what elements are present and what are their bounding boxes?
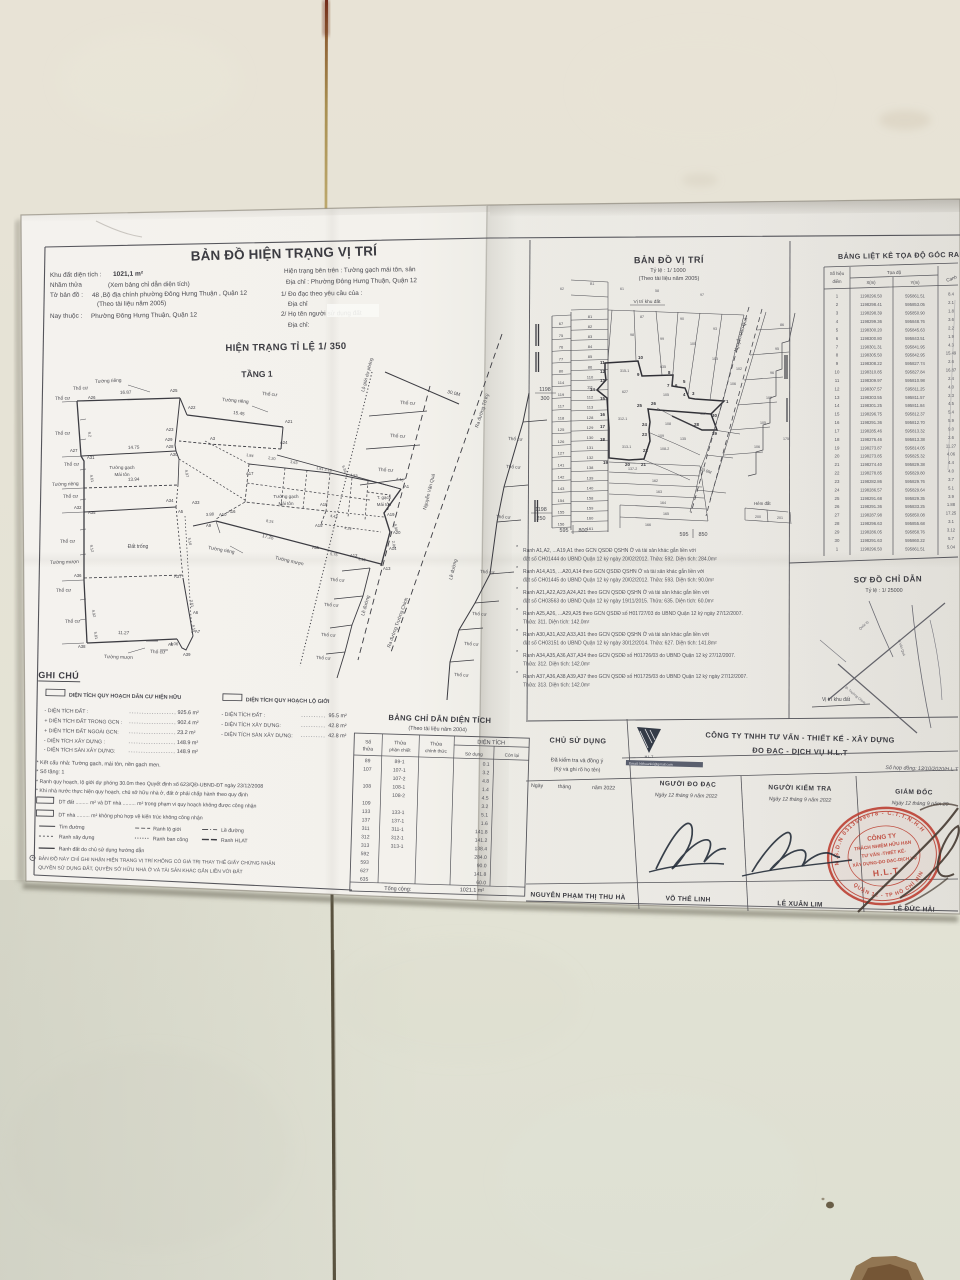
svg-text:595: 595: [680, 532, 689, 538]
svg-text:102: 102: [766, 396, 772, 400]
svg-text:A35: A35: [88, 510, 96, 515]
svg-text:127: 127: [558, 451, 565, 456]
svg-text:108-1: 108-1: [392, 784, 405, 790]
svg-text:126: 126: [558, 439, 565, 444]
svg-text:595810.98: 595810.98: [905, 378, 925, 383]
svg-text:87: 87: [640, 315, 644, 319]
svg-text:* Số tầng: 1: * Số tầng: 1: [36, 769, 64, 776]
svg-text:Thổ cư: Thổ cư: [321, 631, 336, 638]
svg-text:925.6 m²: 925.6 m²: [177, 710, 199, 716]
svg-text:129: 129: [587, 425, 594, 430]
svg-text:312-1: 312-1: [391, 835, 404, 841]
svg-text:595813.38: 595813.38: [905, 437, 925, 442]
svg-text:Y(m): Y(m): [910, 280, 920, 285]
svg-text:311-1: 311-1: [391, 827, 404, 833]
svg-text:200: 200: [755, 515, 761, 519]
svg-text:26: 26: [651, 401, 656, 406]
svg-text:160: 160: [587, 516, 594, 521]
svg-text:5.04: 5.04: [947, 544, 956, 549]
svg-text:102: 102: [736, 367, 742, 371]
svg-text:30: 30: [712, 413, 717, 418]
svg-text:Ranh A30,A31,A32,A33,A31 theo: Ranh A30,A31,A32,A33,A31 theo GCN QSDĐ Q…: [523, 631, 709, 638]
svg-text:130: 130: [587, 435, 594, 440]
svg-text:Tường mượn: Tường mượn: [104, 654, 133, 661]
svg-text:Thổ cư: Thổ cư: [472, 610, 487, 617]
svg-text:119: 119: [558, 392, 565, 397]
svg-text:Sử dụng: Sử dụng: [465, 750, 483, 757]
svg-text:60.0: 60.0: [476, 880, 486, 886]
svg-text:Tường gạch: Tường gạch: [109, 465, 135, 470]
svg-text:1198308.22: 1198308.22: [860, 361, 882, 366]
svg-text:3.7: 3.7: [948, 477, 954, 482]
svg-text:96: 96: [770, 371, 774, 375]
svg-text:Tỷ lệ : 1/ 1000: Tỷ lệ : 1/ 1000: [650, 267, 685, 274]
svg-text:A27: A27: [70, 448, 78, 453]
svg-text:18: 18: [600, 437, 605, 442]
svg-text:H.L.T: H.L.T: [645, 755, 655, 759]
svg-text:4.3: 4.3: [948, 342, 954, 347]
svg-text:24: 24: [835, 487, 840, 492]
svg-text:80: 80: [559, 368, 564, 373]
svg-text:139: 139: [587, 475, 594, 480]
svg-text:3.12: 3.12: [947, 527, 956, 532]
svg-text:593: 593: [360, 860, 369, 866]
svg-text:1198296.75: 1198296.75: [860, 412, 882, 417]
svg-text:3.9: 3.9: [948, 494, 954, 499]
svg-text:315-1: 315-1: [620, 369, 629, 373]
svg-text:19: 19: [835, 445, 840, 450]
svg-text:phần chiết: phần chiết: [389, 747, 411, 753]
svg-text:đất số CH01445 do UBND Quận 12: đất số CH01445 do UBND Quận 12 ký ngày 2…: [523, 577, 714, 584]
svg-text:1198305.50: 1198305.50: [860, 353, 882, 358]
svg-text:4.8: 4.8: [482, 779, 489, 785]
svg-text:107: 107: [363, 767, 372, 773]
svg-text:128: 128: [587, 415, 594, 420]
svg-text:3.88: 3.88: [206, 511, 215, 517]
svg-text:592: 592: [361, 851, 370, 857]
svg-text:1198291.36: 1198291.36: [860, 504, 882, 509]
svg-text:62: 62: [560, 287, 564, 291]
svg-text:A33: A33: [192, 500, 200, 505]
svg-text:23: 23: [835, 479, 840, 484]
svg-text:Thửa: Thửa: [430, 740, 442, 747]
svg-text:17.25: 17.25: [946, 511, 957, 516]
svg-text:99: 99: [660, 337, 664, 341]
svg-text:14.75: 14.75: [128, 445, 140, 450]
svg-text:1021.1 m²: 1021.1 m²: [460, 887, 485, 894]
svg-text:1198: 1198: [539, 387, 551, 393]
svg-text:16.87: 16.87: [946, 368, 957, 373]
svg-text:23: 23: [642, 432, 647, 437]
svg-text:595: 595: [560, 528, 569, 534]
svg-text:138.4: 138.4: [474, 846, 487, 852]
svg-text:131: 131: [587, 445, 594, 450]
svg-text:GHI CHÚ: GHI CHÚ: [38, 669, 79, 681]
svg-text:(Theo tài liệu năm 2005): (Theo tài liệu năm 2005): [97, 300, 166, 308]
svg-text:4.5: 4.5: [948, 401, 954, 406]
svg-text:107-1: 107-1: [393, 767, 406, 773]
svg-text:Số: Số: [365, 739, 372, 745]
svg-text:12: 12: [600, 369, 605, 374]
svg-text:800: 800: [579, 528, 588, 534]
svg-text:A34: A34: [166, 498, 174, 503]
svg-text:17: 17: [835, 428, 840, 433]
svg-text:595841.95: 595841.95: [905, 344, 925, 349]
svg-text:đất số CH03151 do UBND Quận 12: đất số CH03151 do UBND Quận 12 ký ngày 3…: [523, 640, 717, 647]
svg-text:1.8: 1.8: [948, 309, 954, 314]
svg-text:9.0: 9.0: [948, 426, 954, 431]
svg-text:105: 105: [760, 421, 766, 425]
svg-text:A8: A8: [168, 642, 174, 647]
svg-text:107: 107: [700, 412, 706, 416]
svg-text:13: 13: [835, 395, 840, 400]
svg-text:133: 133: [362, 809, 371, 815]
svg-text:850: 850: [699, 532, 708, 538]
svg-text:A36: A36: [74, 573, 82, 578]
svg-text:112: 112: [587, 395, 594, 400]
svg-text:Phường Đông Hưng Thuận, Quận 1: Phường Đông Hưng Thuận, Quận 12: [91, 312, 198, 320]
svg-text:105: 105: [663, 393, 669, 397]
svg-text:58: 58: [655, 289, 659, 293]
svg-text:108-2: 108-2: [660, 447, 669, 451]
svg-text:595829.76: 595829.76: [905, 479, 925, 484]
svg-text:Tường mượn: Tường mượn: [50, 559, 79, 566]
svg-text:133-1: 133-1: [392, 810, 405, 816]
svg-text:A18: A18: [320, 502, 328, 507]
svg-text:4.06: 4.06: [947, 452, 956, 457]
svg-text:1198285.46: 1198285.46: [860, 428, 882, 433]
svg-text:313: 313: [361, 843, 370, 849]
svg-text:90: 90: [680, 317, 684, 321]
svg-text:16.87: 16.87: [120, 390, 132, 395]
svg-text:A24: A24: [280, 440, 288, 445]
svg-text:Đã kiểm tra và đồng ý: Đã kiểm tra và đồng ý: [551, 756, 604, 764]
svg-text:635: 635: [360, 877, 369, 883]
svg-text:15: 15: [600, 396, 605, 401]
svg-text:24: 24: [642, 422, 647, 427]
svg-text:595813.32: 595813.32: [905, 428, 925, 433]
svg-text:1198278.85: 1198278.85: [860, 471, 882, 476]
svg-text:Ranh A34,A35,A36,A37,A34 theo: Ranh A34,A35,A36,A37,A34 theo GCN QSDĐ s…: [523, 653, 735, 659]
svg-text:A6: A6: [193, 610, 199, 615]
svg-text:117: 117: [558, 404, 565, 409]
svg-text:A15: A15: [315, 523, 323, 528]
svg-text:Tỷ lệ : 1/ 25000: Tỷ lệ : 1/ 25000: [865, 587, 902, 594]
svg-text:5.4: 5.4: [948, 410, 954, 415]
svg-text:17: 17: [600, 424, 605, 429]
svg-text:140: 140: [587, 485, 594, 490]
svg-text:A39: A39: [183, 652, 191, 657]
svg-text:4.0: 4.0: [948, 469, 954, 474]
svg-text:Thổ cư: Thổ cư: [506, 463, 521, 470]
svg-text:tháng: tháng: [558, 784, 571, 790]
svg-text:Thửa: Thửa: [394, 739, 406, 746]
svg-text:A19: A19: [387, 512, 395, 517]
svg-text:159: 159: [587, 506, 594, 511]
svg-text:1198274.40: 1198274.40: [860, 462, 882, 467]
svg-text:137-2: 137-2: [628, 467, 637, 471]
svg-text:20: 20: [835, 454, 840, 459]
svg-text:284.0: 284.0: [474, 855, 487, 861]
svg-text:Còn lại: Còn lại: [505, 753, 519, 758]
svg-text:28: 28: [835, 521, 840, 526]
svg-text:165: 165: [663, 512, 669, 516]
svg-text:109: 109: [362, 800, 371, 806]
svg-text:86: 86: [780, 323, 784, 327]
svg-text:89: 89: [365, 758, 371, 764]
svg-text:113: 113: [587, 405, 594, 410]
svg-text:595858.76: 595858.76: [905, 529, 925, 534]
svg-text:Ranh A21,A22,A23,A24,A21 theo: Ranh A21,A22,A23,A24,A21 theo GCN QSDĐ Q…: [523, 589, 709, 596]
svg-text:1198307.57: 1198307.57: [860, 386, 882, 391]
svg-text:162: 162: [652, 479, 658, 483]
svg-text:595811.84: 595811.84: [905, 403, 925, 408]
svg-text:Mái tôn: Mái tôn: [114, 472, 130, 477]
svg-text:595842.95: 595842.95: [905, 353, 925, 358]
svg-text:Ranh ban công: Ranh ban công: [153, 836, 188, 843]
svg-text:A25: A25: [170, 388, 178, 393]
svg-text:156: 156: [558, 521, 565, 526]
svg-text:19: 19: [603, 460, 608, 465]
svg-text:Vị trí khu đất: Vị trí khu đất: [822, 697, 851, 703]
svg-text:105: 105: [712, 357, 718, 361]
svg-text:Lề đường: Lề đường: [221, 828, 244, 834]
svg-text:75: 75: [559, 333, 564, 338]
svg-text:1198287.98: 1198287.98: [860, 513, 882, 518]
svg-text:Ranh A1,A2, ...A19,A1 theo GCN: Ranh A1,A2, ...A19,A1 theo GCN QSDĐ QSHN…: [523, 547, 696, 554]
svg-text:1198303.55: 1198303.55: [860, 395, 882, 400]
svg-text:1.6: 1.6: [481, 821, 488, 827]
svg-text:148.9 m²: 148.9 m²: [177, 749, 199, 755]
svg-text:141.8: 141.8: [474, 871, 487, 877]
svg-text:Địa chỉ:: Địa chỉ:: [288, 321, 310, 329]
svg-text:595855.68: 595855.68: [905, 521, 925, 526]
svg-text:1198282.86: 1198282.86: [860, 479, 882, 484]
svg-text:8.4: 8.4: [948, 292, 954, 297]
svg-text:108-2: 108-2: [392, 793, 405, 799]
svg-text:chính thức: chính thức: [425, 748, 448, 754]
svg-text:18: 18: [835, 437, 840, 442]
svg-text:Ranh HLAT: Ranh HLAT: [221, 838, 249, 845]
svg-text:Địa chỉ: Địa chỉ: [288, 300, 308, 308]
svg-text:125: 125: [558, 427, 565, 432]
svg-text:1198286.57: 1198286.57: [860, 487, 882, 492]
svg-text:Thổ cư: Thổ cư: [464, 640, 479, 647]
svg-text:108: 108: [363, 783, 372, 789]
svg-text:155: 155: [558, 510, 565, 515]
svg-text:1198301.31: 1198301.31: [860, 344, 882, 349]
svg-text:đất số CH01444 do UBND Quận 12: đất số CH01444 do UBND Quận 12 ký ngày 2…: [523, 556, 717, 563]
svg-text:902.4 m²: 902.4 m²: [177, 720, 199, 726]
svg-text:25: 25: [637, 403, 642, 408]
svg-text:Thửa: 313. Diện tích: 142.0m²: Thửa: 313. Diện tích: 142.0m²: [523, 682, 590, 689]
svg-text:A16: A16: [228, 509, 236, 514]
svg-text:110: 110: [587, 374, 594, 379]
svg-text:107-2: 107-2: [393, 776, 406, 782]
svg-text:595812.37: 595812.37: [905, 412, 925, 417]
svg-text:595811.25: 595811.25: [905, 386, 925, 391]
svg-text:Ranh A37,A36,A38,A39,A37 theo: Ranh A37,A36,A38,A39,A37 theo GCN QSDĐ s…: [523, 674, 748, 680]
svg-text:595827.74: 595827.74: [905, 361, 925, 366]
svg-text:595848.76: 595848.76: [905, 319, 925, 324]
svg-text:118: 118: [558, 415, 565, 420]
svg-text:16: 16: [600, 412, 605, 417]
svg-text:Tường gạch: Tường gạch: [273, 494, 299, 499]
svg-text:A1: A1: [404, 484, 410, 489]
svg-text:14: 14: [835, 403, 840, 408]
svg-text:161: 161: [587, 526, 594, 531]
svg-text:163: 163: [656, 490, 662, 494]
svg-text:11: 11: [600, 360, 605, 365]
svg-text:595825.32: 595825.32: [905, 454, 925, 459]
svg-text:đất số CH03563 do UBND Quận 12: đất số CH03563 do UBND Quận 12 ký ngày 1…: [523, 598, 714, 605]
svg-text:năm 2022: năm 2022: [592, 785, 615, 792]
svg-text:86: 86: [588, 364, 593, 369]
svg-text:595850.08: 595850.08: [905, 513, 925, 518]
svg-text:83: 83: [588, 334, 593, 339]
svg-text:HIỆN TRẠNG TỈ LỆ 1/ 350: HIỆN TRẠNG TỈ LỆ 1/ 350: [225, 340, 346, 354]
svg-text:Mái tôn: Mái tôn: [377, 502, 392, 507]
svg-text:1198300.20: 1198300.20: [860, 327, 882, 332]
svg-text:*: *: [31, 856, 33, 862]
svg-text:1198296.50: 1198296.50: [860, 546, 882, 551]
svg-text:13: 13: [600, 378, 605, 383]
svg-text:CHỦ SỬ DỤNG: CHỦ SỬ DỤNG: [549, 736, 606, 746]
svg-text:Thổ cư: Thổ cư: [496, 513, 511, 520]
svg-text:Thổ cư: Thổ cư: [324, 601, 339, 608]
svg-text:627: 627: [360, 868, 369, 874]
svg-text:114: 114: [558, 380, 565, 385]
svg-text:B1: B1: [590, 282, 594, 286]
svg-text:X(m): X(m): [866, 280, 876, 285]
svg-text:201: 201: [777, 516, 783, 520]
svg-text:98: 98: [630, 333, 634, 337]
svg-text:148.9 m²: 148.9 m²: [177, 740, 199, 746]
svg-text:15: 15: [835, 412, 840, 417]
svg-text:Tổng cộng:: Tổng cộng:: [384, 885, 411, 893]
svg-text:90.0: 90.0: [477, 863, 487, 869]
svg-text:595833.25: 595833.25: [905, 504, 925, 509]
svg-text:1.4: 1.4: [482, 787, 489, 793]
svg-text:A10: A10: [219, 512, 227, 517]
svg-text:30: 30: [835, 538, 840, 543]
svg-text:A13: A13: [383, 566, 391, 571]
svg-text:138: 138: [587, 465, 594, 470]
svg-text:3.6: 3.6: [948, 317, 954, 322]
svg-text:1198298.39: 1198298.39: [860, 311, 882, 316]
svg-text:Vị trí khu đất: Vị trí khu đất: [634, 299, 662, 305]
svg-text:595827.84: 595827.84: [905, 370, 925, 375]
svg-text:21: 21: [641, 462, 646, 467]
svg-text:28: 28: [694, 422, 699, 427]
svg-text:141.8: 141.8: [475, 829, 488, 835]
svg-text:1198291.36: 1198291.36: [860, 420, 882, 425]
svg-text:12: 12: [835, 386, 840, 391]
svg-text:313-1: 313-1: [391, 844, 404, 850]
svg-text:81: 81: [588, 314, 593, 319]
svg-text:1198301.25: 1198301.25: [860, 403, 882, 408]
svg-text:1198286.05: 1198286.05: [860, 529, 882, 534]
svg-text:143: 143: [558, 486, 565, 491]
svg-text:1198300.80: 1198300.80: [860, 336, 882, 341]
svg-text:132: 132: [587, 455, 594, 460]
svg-text:1.88: 1.88: [947, 502, 956, 507]
svg-text:1021,1 m²: 1021,1 m²: [113, 271, 144, 278]
svg-text:1198310.85: 1198310.85: [860, 370, 882, 375]
svg-text:15.49: 15.49: [946, 351, 957, 356]
svg-text:21: 21: [835, 462, 840, 467]
svg-text:TẦNG 1: TẦNG 1: [241, 369, 273, 380]
svg-text:97: 97: [700, 293, 704, 297]
svg-text:A17: A17: [246, 471, 254, 476]
svg-text:166: 166: [645, 523, 651, 527]
svg-text:22: 22: [643, 448, 648, 453]
svg-text:2.4: 2.4: [948, 376, 954, 381]
svg-text:Ranh lộ giới: Ranh lộ giới: [153, 826, 181, 833]
svg-text:3.1: 3.1: [948, 519, 954, 524]
svg-text:11.27: 11.27: [118, 630, 130, 635]
svg-text:312-1: 312-1: [618, 417, 627, 421]
svg-text:Thổ cư: Thổ cư: [316, 654, 331, 661]
svg-text:1198291.63: 1198291.63: [860, 538, 882, 543]
svg-text:Nhầm thửa: Nhầm thửa: [50, 280, 83, 289]
svg-text:Thổ cư: Thổ cư: [508, 435, 523, 442]
svg-text:Số hiệu: Số hiệu: [830, 271, 845, 276]
svg-text:108: 108: [665, 422, 671, 426]
svg-text:311: 311: [362, 826, 370, 832]
svg-text:T. gạch: T. gạch: [377, 495, 392, 500]
svg-text:595811.57: 595811.57: [905, 395, 925, 400]
svg-text:5.7: 5.7: [948, 536, 954, 541]
svg-text:Thổ cư: Thổ cư: [454, 671, 469, 678]
svg-text:1198296.63: 1198296.63: [860, 521, 882, 526]
svg-text:595812.70: 595812.70: [905, 420, 925, 425]
svg-text:A22: A22: [188, 405, 196, 410]
svg-text:25: 25: [835, 496, 840, 501]
svg-text:141: 141: [558, 463, 565, 468]
svg-text:595860.22: 595860.22: [905, 538, 925, 543]
svg-text:A3: A3: [210, 436, 216, 441]
svg-text:Thổ cư: Thổ cư: [480, 568, 495, 575]
svg-text:1198299.36: 1198299.36: [860, 319, 882, 324]
svg-text:A23: A23: [166, 427, 174, 432]
svg-text:Tờ bản đồ :: Tờ bản đồ :: [50, 290, 83, 299]
svg-text:627: 627: [622, 390, 628, 394]
svg-text:595850.90: 595850.90: [905, 311, 925, 316]
svg-text:137-1: 137-1: [391, 818, 404, 824]
svg-text:164: 164: [660, 501, 666, 505]
svg-text:Mái tôn: Mái tôn: [278, 501, 294, 506]
svg-text:595861.51: 595861.51: [905, 546, 925, 551]
svg-text:23.2 m²: 23.2 m²: [177, 730, 196, 736]
svg-text:154: 154: [558, 498, 565, 503]
svg-text:Tọa độ: Tọa độ: [887, 270, 902, 275]
svg-text:A21: A21: [285, 419, 293, 424]
svg-text:67: 67: [559, 321, 564, 326]
svg-text:595829.35: 595829.35: [905, 496, 925, 501]
svg-text:10: 10: [638, 355, 643, 360]
svg-text:27: 27: [835, 513, 840, 518]
svg-text:Tim đường: Tim đường: [59, 824, 85, 831]
svg-text:300: 300: [541, 396, 550, 402]
svg-text:1198276.46: 1198276.46: [860, 437, 882, 442]
svg-text:89-1: 89-1: [394, 759, 404, 765]
svg-text:A29: A29: [165, 437, 173, 442]
svg-text:4.5: 4.5: [482, 795, 489, 801]
svg-text:A31: A31: [87, 455, 95, 460]
svg-text:42.8 m²: 42.8 m²: [328, 733, 347, 739]
svg-text:93: 93: [713, 327, 717, 331]
